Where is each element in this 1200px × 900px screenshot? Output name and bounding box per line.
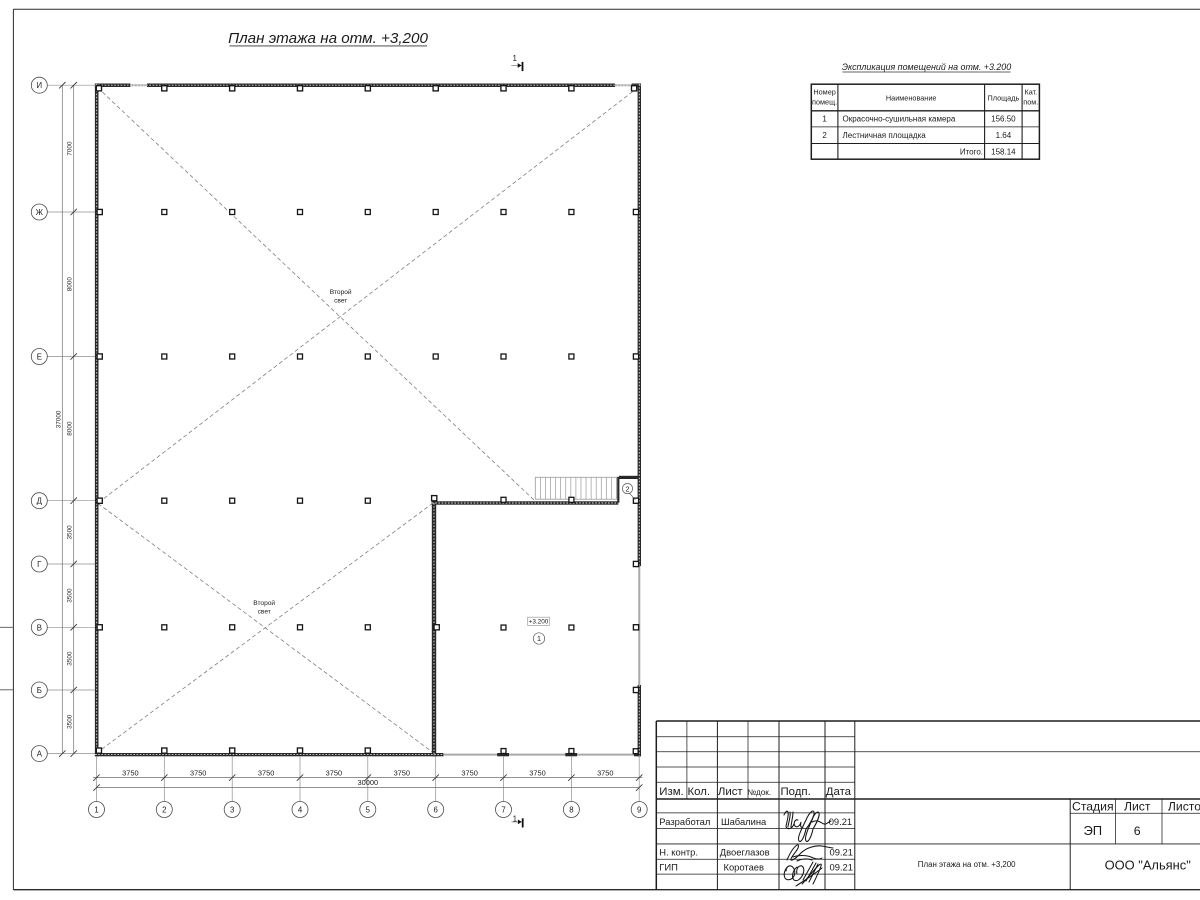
- svg-text:ЭП: ЭП: [1083, 823, 1102, 838]
- svg-text:Д: Д: [37, 497, 43, 506]
- svg-text:2: 2: [162, 806, 166, 815]
- svg-text:Коротаев: Коротаев: [724, 861, 765, 872]
- svg-text:Лестничная площадка: Лестничная площадка: [843, 131, 927, 140]
- svg-text:3750: 3750: [597, 768, 613, 777]
- svg-text:ООО "Альянс": ООО "Альянс": [1105, 857, 1192, 872]
- svg-text:09.21: 09.21: [830, 861, 853, 872]
- svg-text:3750: 3750: [529, 768, 545, 777]
- svg-text:1: 1: [822, 115, 827, 124]
- svg-text:Двоеглазов: Двоеглазов: [720, 846, 770, 857]
- svg-text:помещ.: помещ.: [812, 98, 837, 107]
- svg-text:09.21: 09.21: [829, 816, 852, 827]
- svg-text:Кол.: Кол.: [688, 786, 711, 798]
- svg-text:4: 4: [298, 806, 303, 815]
- svg-text:Листов: Листов: [1168, 800, 1200, 814]
- svg-text:Шабалина: Шабалина: [721, 816, 767, 827]
- svg-text:3750: 3750: [461, 768, 477, 777]
- svg-text:1: 1: [537, 634, 541, 643]
- svg-text:Разработал: Разработал: [659, 816, 710, 827]
- svg-text:3750: 3750: [190, 768, 206, 777]
- svg-text:3500: 3500: [67, 525, 74, 540]
- svg-text:3750: 3750: [326, 768, 342, 777]
- svg-text:3750: 3750: [394, 768, 410, 777]
- svg-text:3750: 3750: [258, 768, 274, 777]
- svg-text:Номер: Номер: [813, 87, 835, 96]
- svg-text:А: А: [37, 750, 43, 759]
- svg-text:Кат.: Кат.: [1024, 87, 1037, 96]
- svg-text:План этажа на отм. +3,200: План этажа на отм. +3,200: [918, 860, 1016, 869]
- svg-text:Н. контр.: Н. контр.: [659, 846, 698, 857]
- svg-text:2: 2: [822, 131, 827, 140]
- svg-text:7000: 7000: [67, 141, 74, 156]
- svg-text:3500: 3500: [67, 651, 74, 666]
- svg-text:5: 5: [366, 806, 371, 815]
- svg-text:Подп.: Подп.: [781, 786, 811, 798]
- svg-text:Окрасочно-сушильная камера: Окрасочно-сушильная камера: [843, 115, 956, 124]
- svg-text:8: 8: [569, 806, 573, 815]
- svg-text:3500: 3500: [67, 714, 74, 729]
- svg-text:Лист: Лист: [718, 786, 744, 798]
- svg-text:2: 2: [626, 484, 630, 493]
- svg-text:3: 3: [230, 806, 234, 815]
- svg-text:ГИП: ГИП: [659, 861, 678, 872]
- svg-text:В: В: [37, 623, 42, 632]
- svg-text:№док.: №док.: [747, 788, 771, 797]
- svg-text:9: 9: [637, 806, 641, 815]
- svg-text:Лист: Лист: [1124, 800, 1151, 814]
- svg-text:158.14: 158.14: [991, 148, 1016, 157]
- svg-text:Е: Е: [37, 353, 42, 362]
- svg-text:3500: 3500: [67, 588, 74, 603]
- svg-text:свет: свет: [334, 298, 347, 305]
- svg-text:30000: 30000: [358, 778, 379, 787]
- svg-text:156.50: 156.50: [991, 115, 1016, 124]
- svg-text:Стадия: Стадия: [1072, 800, 1114, 814]
- svg-text:Итого.: Итого.: [960, 148, 983, 157]
- svg-text:Ж: Ж: [36, 208, 44, 217]
- svg-text:Наименование: Наименование: [886, 94, 937, 103]
- svg-text:8000: 8000: [67, 421, 74, 436]
- svg-text:Дата: Дата: [826, 786, 852, 798]
- svg-text:3750: 3750: [122, 768, 138, 777]
- svg-text:6: 6: [434, 806, 438, 815]
- svg-text:Б: Б: [37, 686, 42, 695]
- svg-text:Второй: Второй: [253, 599, 275, 607]
- svg-text:7: 7: [501, 806, 505, 815]
- svg-text:Второй: Второй: [330, 288, 352, 296]
- svg-text:Изм.: Изм.: [659, 786, 683, 798]
- svg-text:8000: 8000: [67, 277, 74, 292]
- svg-text:1: 1: [513, 814, 518, 823]
- svg-text:37000: 37000: [55, 410, 62, 428]
- svg-text:свет: свет: [258, 609, 271, 616]
- svg-text:План этажа на отм. +3,200: План этажа на отм. +3,200: [228, 30, 428, 47]
- svg-text:6: 6: [1134, 824, 1141, 838]
- svg-text:+3.200: +3.200: [529, 619, 549, 626]
- svg-text:пом.: пом.: [1023, 98, 1038, 107]
- svg-text:1.64: 1.64: [996, 131, 1012, 140]
- svg-text:1: 1: [94, 806, 98, 815]
- svg-text:И: И: [36, 81, 42, 90]
- svg-text:Экспликация помещений на отм.: Экспликация помещений на отм. +3.200: [842, 62, 1011, 72]
- svg-text:Площадь: Площадь: [988, 94, 1020, 103]
- svg-text:1: 1: [512, 54, 517, 63]
